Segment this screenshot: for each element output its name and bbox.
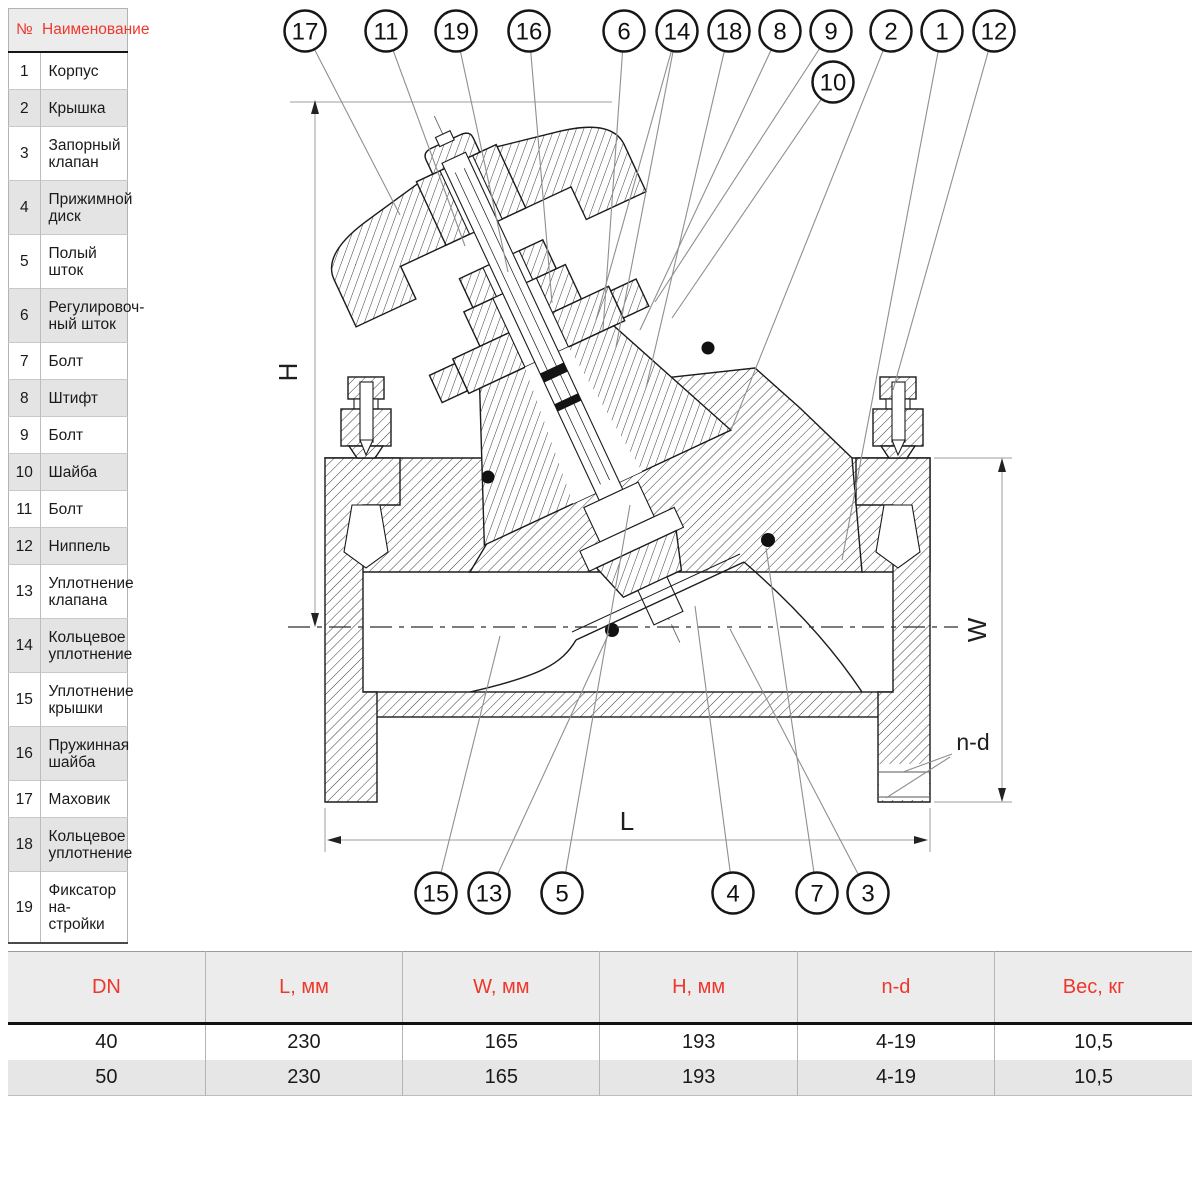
table-row: 14Кольцевое уплотнение [9, 619, 128, 673]
dim-cell: 4-19 [797, 1024, 994, 1061]
part-number: 2 [9, 90, 41, 127]
parts-table: № Наименование 1Корпус2Крышка3Запорный к… [8, 8, 128, 944]
callout-10-number: 10 [820, 70, 847, 97]
callout-5-number: 5 [555, 881, 568, 908]
callout-15-leader [436, 636, 500, 893]
callout-2-leader [731, 31, 891, 430]
dim-col-header: Вес, кг [995, 952, 1192, 1024]
callout-13-leader [489, 633, 609, 893]
callout-17-number: 17 [292, 19, 319, 46]
table-row: 16Пружинная шайба [9, 727, 128, 781]
dim-cell: 40 [8, 1024, 205, 1061]
dim-label-H: H [273, 363, 303, 382]
part-number: 8 [9, 380, 41, 417]
flange-bolt-hole [879, 764, 929, 800]
part-number: 17 [9, 781, 41, 818]
callout-11-number: 11 [374, 19, 399, 46]
table-row: 3Запорный клапан [9, 127, 128, 181]
part-name: Кольцевое уплотнение [40, 619, 128, 673]
part-number: 1 [9, 52, 41, 90]
dim-cell: 4-19 [797, 1060, 994, 1096]
table-row: 6Регулировоч- ный шток [9, 289, 128, 343]
callout-9-number: 9 [824, 19, 837, 46]
dim-cell: 165 [403, 1024, 600, 1061]
callout-17-leader [305, 31, 400, 215]
col-header-name: Наименование [40, 9, 128, 53]
part-number: 3 [9, 127, 41, 181]
part-name: Ниппель [40, 528, 128, 565]
dim-col-header: DN [8, 952, 205, 1024]
table-row: 18Кольцевое уплотнение [9, 818, 128, 872]
table-row: 5Полый шток [9, 235, 128, 289]
part-number: 19 [9, 872, 41, 944]
table-row: 402301651934-1910,5 [8, 1024, 1192, 1061]
callout-3-number: 3 [861, 881, 874, 908]
table-row: 4Прижимной диск [9, 181, 128, 235]
part-name: Корпус [40, 52, 128, 90]
table-row: 1Корпус [9, 52, 128, 90]
part-number: 5 [9, 235, 41, 289]
part-name: Болт [40, 491, 128, 528]
dim-cell: 10,5 [995, 1024, 1192, 1061]
callout-13-number: 13 [476, 881, 503, 908]
part-number: 15 [9, 673, 41, 727]
left-test-port [341, 377, 391, 458]
part-number: 14 [9, 619, 41, 673]
right-test-port [873, 377, 923, 458]
part-name: Уплотнение крышки [40, 673, 128, 727]
table-row: 502301651934-1910,5 [8, 1060, 1192, 1096]
parts-table-body: 1Корпус2Крышка3Запорный клапан4Прижимной… [9, 52, 128, 943]
dim-col-header: n-d [797, 952, 994, 1024]
callout-7-leader [766, 548, 817, 893]
part-number: 13 [9, 565, 41, 619]
part-number: 11 [9, 491, 41, 528]
part-name: Маховик [40, 781, 128, 818]
table-row: 10Шайба [9, 454, 128, 491]
part-number: 10 [9, 454, 41, 491]
part-name: Шайба [40, 454, 128, 491]
callout-18-number: 18 [716, 19, 743, 46]
part-name: Кольцевое уплотнение [40, 818, 128, 872]
dim-col-header: W, мм [403, 952, 600, 1024]
dim-cell: 50 [8, 1060, 205, 1096]
table-row: 2Крышка [9, 90, 128, 127]
callout-8-number: 8 [773, 19, 786, 46]
dim-cell: 165 [403, 1060, 600, 1096]
part-name: Болт [40, 417, 128, 454]
parts-table-header: № Наименование [9, 9, 128, 53]
table-row: 13Уплотнение клапана [9, 565, 128, 619]
part-name: Полый шток [40, 235, 128, 289]
part-name: Прижимной диск [40, 181, 128, 235]
table-row: 12Ниппель [9, 528, 128, 565]
dim-cell: 193 [600, 1024, 797, 1061]
part-name: Штифт [40, 380, 128, 417]
dim-cell: 193 [600, 1060, 797, 1096]
callout-4-leader [695, 606, 733, 893]
part-number: 9 [9, 417, 41, 454]
callout-2-number: 2 [884, 19, 897, 46]
table-row: 8Штифт [9, 380, 128, 417]
part-number: 7 [9, 343, 41, 380]
part-number: 12 [9, 528, 41, 565]
callout-18-leader [646, 31, 729, 388]
dimension-L: L [325, 806, 930, 852]
table-row: 19Фиксатор на- стройки [9, 872, 128, 944]
part-name: Уплотнение клапана [40, 565, 128, 619]
dim-col-header: L, мм [205, 952, 402, 1024]
dim-cell: 230 [205, 1024, 402, 1061]
dim-label-nd: n-d [956, 729, 989, 755]
callout-3-leader [730, 629, 868, 893]
callout-19-number: 19 [443, 19, 470, 46]
callout-16-number: 16 [516, 19, 543, 46]
col-header-num: № [9, 9, 41, 53]
dim-cell: 10,5 [995, 1060, 1192, 1096]
callout-7-number: 7 [810, 881, 823, 908]
part-number: 18 [9, 818, 41, 872]
callout-4-number: 4 [726, 881, 739, 908]
table-row: 9Болт [9, 417, 128, 454]
dimensions-table-body: 402301651934-1910,5502301651934-1910,5 [8, 1024, 1192, 1096]
table-row: 17Маховик [9, 781, 128, 818]
dim-col-header: H, мм [600, 952, 797, 1024]
callout-10-leader [672, 82, 833, 318]
part-name: Крышка [40, 90, 128, 127]
callout-12-number: 12 [981, 19, 1008, 46]
dim-cell: 230 [205, 1060, 402, 1096]
table-row: 15Уплотнение крышки [9, 673, 128, 727]
table-row: 7Болт [9, 343, 128, 380]
part-name: Регулировоч- ный шток [40, 289, 128, 343]
callout-6-number: 6 [617, 19, 630, 46]
callout-14-number: 14 [664, 19, 691, 46]
callout-8-leader [640, 31, 780, 330]
part-number: 16 [9, 727, 41, 781]
part-number: 4 [9, 181, 41, 235]
table-row: 11Болт [9, 491, 128, 528]
dim-label-L: L [620, 806, 634, 836]
dimensions-table-header: DNL, ммW, ммH, ммn-dВес, кг [8, 952, 1192, 1024]
part-number: 6 [9, 289, 41, 343]
part-name: Фиксатор на- стройки [40, 872, 128, 944]
dim-label-W: W [962, 617, 992, 642]
callout-15-number: 15 [423, 881, 450, 908]
part-name: Пружинная шайба [40, 727, 128, 781]
callout-1-number: 1 [935, 19, 948, 46]
part-name: Болт [40, 343, 128, 380]
callout-9-leader [655, 31, 831, 302]
dimensions-table: DNL, ммW, ммH, ммn-dВес, кг 402301651934… [8, 951, 1192, 1096]
part-name: Запорный клапан [40, 127, 128, 181]
